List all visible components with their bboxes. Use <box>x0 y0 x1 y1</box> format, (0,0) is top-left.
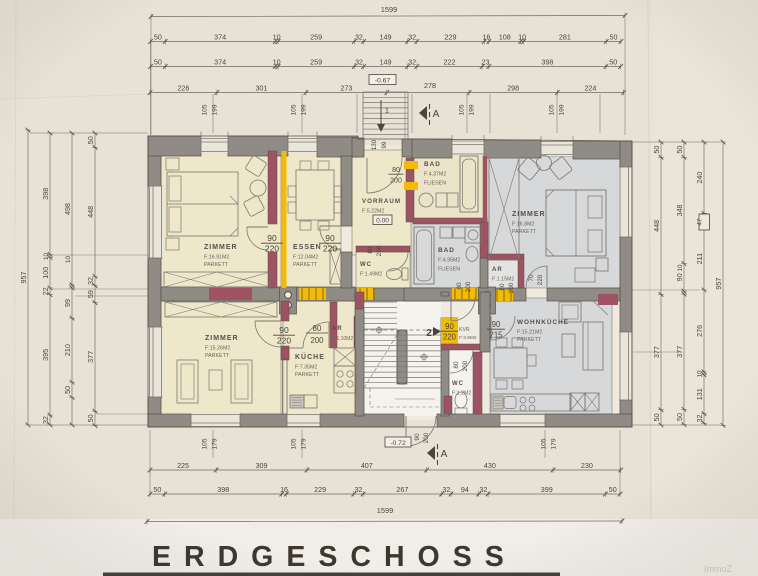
svg-text:309: 309 <box>256 461 268 470</box>
svg-text:99: 99 <box>381 141 388 148</box>
svg-text:211: 211 <box>695 253 704 264</box>
svg-text:10: 10 <box>65 256 72 263</box>
svg-text:0.00: 0.00 <box>376 218 389 225</box>
svg-text:47: 47 <box>697 218 704 226</box>
svg-text:F:1.2M2: F:1.2M2 <box>452 391 471 397</box>
svg-text:276: 276 <box>695 325 704 337</box>
svg-text:1599: 1599 <box>381 5 397 14</box>
svg-text:ImmoZ: ImmoZ <box>704 564 733 574</box>
svg-text:AR: AR <box>332 326 343 332</box>
svg-text:200: 200 <box>423 432 430 443</box>
svg-text:200: 200 <box>465 281 472 292</box>
svg-text:-0.72: -0.72 <box>390 440 406 447</box>
svg-text:130: 130 <box>371 139 378 150</box>
svg-text:430: 430 <box>484 461 496 470</box>
svg-text:50: 50 <box>610 32 618 41</box>
svg-text:50: 50 <box>609 485 617 494</box>
svg-text:200: 200 <box>310 336 324 345</box>
svg-text:105: 105 <box>549 104 556 115</box>
svg-text:229: 229 <box>314 485 326 494</box>
svg-text:90: 90 <box>492 320 501 329</box>
svg-text:301: 301 <box>255 83 267 92</box>
svg-text:498: 498 <box>63 203 72 215</box>
svg-text:90: 90 <box>279 325 289 335</box>
svg-text:PARKETT: PARKETT <box>295 372 320 378</box>
svg-text:399: 399 <box>541 485 553 494</box>
svg-text:199: 199 <box>469 104 476 115</box>
svg-text:105: 105 <box>291 438 298 449</box>
svg-text:PARKETT: PARKETT <box>512 229 537 235</box>
svg-text:1: 1 <box>385 106 389 115</box>
svg-text:-0.67: -0.67 <box>375 78 391 85</box>
svg-text:80: 80 <box>313 324 322 333</box>
svg-text:377: 377 <box>86 351 95 363</box>
svg-text:50: 50 <box>154 57 162 66</box>
svg-text:80: 80 <box>499 283 506 291</box>
svg-text:10: 10 <box>43 253 50 260</box>
svg-text:957: 957 <box>714 278 723 290</box>
svg-text:KVR: KVR <box>459 327 470 333</box>
svg-text:105: 105 <box>541 438 548 449</box>
svg-text:ZIMMER: ZIMMER <box>512 211 546 218</box>
svg-text:229: 229 <box>445 32 457 41</box>
svg-text:FLIESEN: FLIESEN <box>424 181 446 187</box>
svg-text:398: 398 <box>541 57 553 66</box>
svg-text:108: 108 <box>499 32 511 41</box>
svg-text:80: 80 <box>392 167 400 174</box>
svg-text:F:1.10M2: F:1.10M2 <box>332 336 353 342</box>
svg-text:374: 374 <box>214 32 226 41</box>
svg-text:F:3.8M2: F:3.8M2 <box>459 335 477 341</box>
svg-text:32: 32 <box>442 485 450 494</box>
svg-text:50: 50 <box>63 386 72 394</box>
svg-text:90: 90 <box>325 233 335 243</box>
svg-text:225: 225 <box>177 461 189 470</box>
svg-text:100: 100 <box>41 267 50 279</box>
svg-text:WC: WC <box>360 262 372 268</box>
svg-text:267: 267 <box>396 485 408 494</box>
svg-text:BAD: BAD <box>438 247 455 254</box>
svg-text:BAD: BAD <box>424 161 441 168</box>
svg-text:16: 16 <box>483 32 491 41</box>
svg-text:224: 224 <box>584 83 596 92</box>
svg-text:199: 199 <box>212 104 219 115</box>
svg-text:32: 32 <box>408 57 416 66</box>
svg-text:WC: WC <box>452 381 464 387</box>
svg-text:32: 32 <box>695 415 704 423</box>
svg-text:A: A <box>441 449 448 460</box>
svg-text:WOHNKÜCHE: WOHNKÜCHE <box>517 317 569 326</box>
svg-text:80: 80 <box>453 361 460 369</box>
svg-text:ZIMMER: ZIMMER <box>204 244 238 251</box>
svg-text:80: 80 <box>367 246 374 254</box>
svg-text:PARKETT: PARKETT <box>205 353 230 359</box>
svg-text:131: 131 <box>695 388 704 400</box>
svg-text:105: 105 <box>202 104 209 115</box>
svg-text:F:4.37M2: F:4.37M2 <box>424 172 446 178</box>
svg-text:PARKETT: PARKETT <box>204 262 229 268</box>
svg-text:398: 398 <box>217 485 229 494</box>
svg-text:ESSEN: ESSEN <box>293 244 322 251</box>
svg-text:2: 2 <box>426 328 432 339</box>
svg-text:AR: AR <box>492 267 503 273</box>
svg-text:ZIMMER: ZIMMER <box>205 335 239 342</box>
svg-text:179: 179 <box>212 438 219 449</box>
svg-text:10: 10 <box>518 32 526 41</box>
svg-text:ERDGESCHOSS: ERDGESCHOSS <box>152 541 517 573</box>
svg-text:10: 10 <box>273 57 281 66</box>
svg-text:F:1.15M2: F:1.15M2 <box>492 277 514 283</box>
svg-text:F:15.26M2: F:15.26M2 <box>205 346 230 352</box>
svg-text:32: 32 <box>86 277 95 285</box>
svg-text:395: 395 <box>41 349 50 361</box>
svg-text:F:16.8M2: F:16.8M2 <box>512 222 534 228</box>
svg-text:F:12.04M2: F:12.04M2 <box>293 255 318 261</box>
svg-text:230: 230 <box>581 461 593 470</box>
svg-text:220: 220 <box>277 336 291 346</box>
svg-text:KÜCHE: KÜCHE <box>295 352 325 361</box>
svg-text:59: 59 <box>86 290 95 298</box>
svg-text:10: 10 <box>697 370 704 377</box>
svg-text:90: 90 <box>675 273 684 281</box>
svg-text:200: 200 <box>390 178 402 185</box>
svg-text:32: 32 <box>355 32 363 41</box>
svg-text:50: 50 <box>652 146 661 154</box>
svg-text:32: 32 <box>408 32 416 41</box>
svg-text:94: 94 <box>461 485 469 494</box>
svg-text:32: 32 <box>41 416 50 424</box>
svg-text:200: 200 <box>462 360 469 371</box>
svg-text:23: 23 <box>482 57 490 66</box>
svg-text:32: 32 <box>354 485 362 494</box>
svg-text:199: 199 <box>301 104 308 115</box>
svg-text:398: 398 <box>41 188 50 200</box>
svg-text:90: 90 <box>267 233 277 243</box>
svg-text:50: 50 <box>154 32 162 41</box>
svg-text:50: 50 <box>609 57 617 66</box>
svg-text:374: 374 <box>214 57 226 66</box>
svg-text:80: 80 <box>456 282 463 290</box>
svg-text:F:1.49M2: F:1.49M2 <box>360 272 382 278</box>
svg-text:1599: 1599 <box>377 506 393 515</box>
svg-text:259: 259 <box>310 32 322 41</box>
svg-text:220: 220 <box>265 244 279 254</box>
svg-text:99: 99 <box>63 299 72 307</box>
svg-text:16: 16 <box>280 485 288 494</box>
svg-text:215: 215 <box>489 331 503 340</box>
svg-text:90: 90 <box>445 322 454 331</box>
svg-text:348: 348 <box>675 204 684 216</box>
svg-text:220: 220 <box>537 274 544 285</box>
svg-text:F:15.21M2: F:15.21M2 <box>517 330 542 336</box>
svg-text:10: 10 <box>677 264 684 271</box>
svg-text:105: 105 <box>202 438 209 449</box>
svg-text:273: 273 <box>340 83 352 92</box>
svg-text:50: 50 <box>86 414 95 422</box>
svg-text:50: 50 <box>675 146 684 154</box>
svg-text:377: 377 <box>675 346 684 358</box>
svg-text:105: 105 <box>291 104 298 115</box>
svg-text:226: 226 <box>177 83 189 92</box>
svg-text:VORRAUM: VORRAUM <box>362 198 401 205</box>
svg-text:50: 50 <box>675 413 684 421</box>
svg-text:50: 50 <box>153 485 161 494</box>
svg-text:278: 278 <box>424 81 436 90</box>
svg-text:32: 32 <box>355 57 363 66</box>
svg-text:220: 220 <box>443 333 457 342</box>
svg-text:179: 179 <box>551 438 558 449</box>
svg-text:32: 32 <box>479 485 487 494</box>
svg-text:A: A <box>433 109 440 120</box>
svg-text:240: 240 <box>695 172 704 184</box>
svg-text:F:16.91M2: F:16.91M2 <box>204 255 229 261</box>
svg-text:PARKETT: PARKETT <box>293 262 318 268</box>
svg-text:90: 90 <box>414 433 421 441</box>
svg-text:259: 259 <box>310 57 322 66</box>
svg-text:179: 179 <box>301 438 308 449</box>
svg-text:70: 70 <box>528 274 535 282</box>
svg-text:281: 281 <box>559 32 571 41</box>
svg-text:10: 10 <box>273 32 281 41</box>
svg-text:957: 957 <box>19 271 28 283</box>
svg-text:200: 200 <box>376 245 383 256</box>
svg-text:199: 199 <box>559 104 566 115</box>
svg-text:PARKETT: PARKETT <box>517 337 542 343</box>
svg-text:50: 50 <box>652 413 661 421</box>
svg-text:149: 149 <box>380 32 392 41</box>
svg-text:200: 200 <box>508 282 515 293</box>
svg-text:210: 210 <box>63 344 72 356</box>
svg-text:448: 448 <box>652 220 661 232</box>
svg-text:448: 448 <box>86 206 95 218</box>
svg-text:149: 149 <box>380 57 392 66</box>
svg-text:22: 22 <box>41 287 50 295</box>
svg-text:F:4.95M2: F:4.95M2 <box>438 258 460 264</box>
svg-text:FLIESEN: FLIESEN <box>438 267 460 273</box>
svg-text:50: 50 <box>86 136 95 144</box>
svg-text:407: 407 <box>361 461 373 470</box>
svg-text:105: 105 <box>459 104 466 115</box>
svg-text:220: 220 <box>323 244 337 254</box>
svg-text:298: 298 <box>507 83 519 92</box>
svg-text:F:5.22M2: F:5.22M2 <box>362 209 384 215</box>
svg-text:222: 222 <box>443 57 455 66</box>
svg-text:F:7.35M2: F:7.35M2 <box>295 365 317 371</box>
